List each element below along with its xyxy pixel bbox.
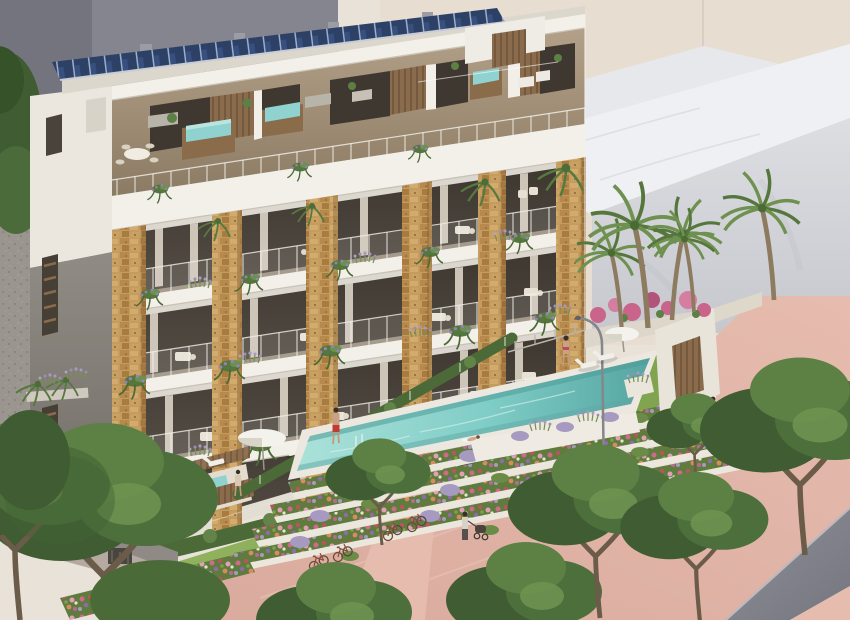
wood-gate	[672, 336, 704, 400]
stroller	[475, 525, 486, 533]
architectural-render	[0, 0, 850, 620]
hot-tub-3	[470, 68, 502, 100]
render-canvas	[0, 0, 850, 620]
side-window-small	[46, 114, 62, 156]
